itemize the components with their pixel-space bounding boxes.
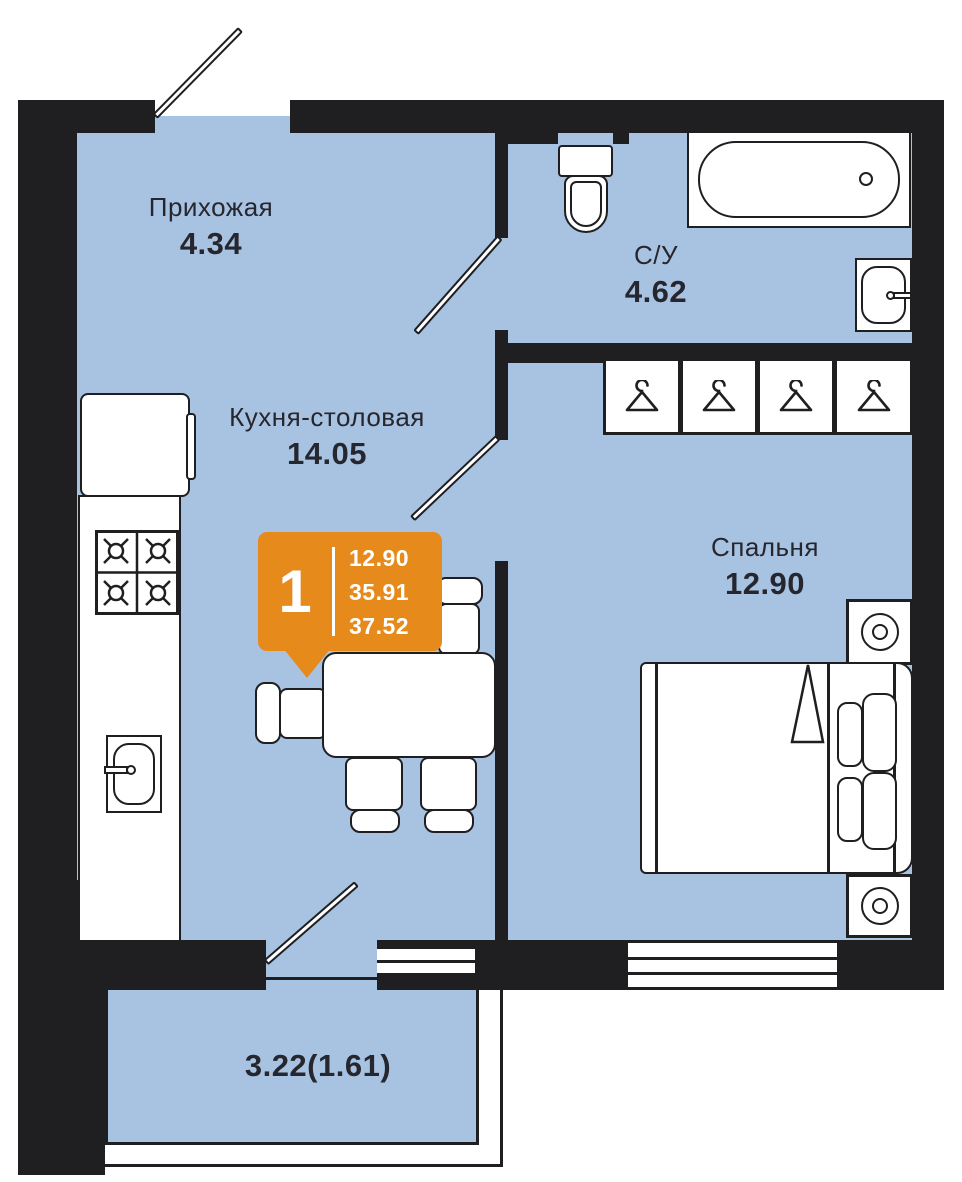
room-label-bathroom: С/У 4.62 <box>625 240 687 310</box>
chair-back-bottom-1 <box>350 809 400 833</box>
lamp-icon-inner <box>872 898 888 914</box>
floor-entrance-gap <box>155 116 290 136</box>
pillow <box>837 702 863 767</box>
room-name: Кухня-столовая <box>229 402 425 433</box>
wall-tab-right-of-toilet <box>613 128 629 144</box>
wardrobe-cell <box>757 358 835 435</box>
bed-footboard-line <box>655 664 658 872</box>
badge-areas: 12.90 35.91 37.52 <box>335 532 409 651</box>
floor-plan: Прихожая 4.34 Кухня-столовая 14.05 С/У 4… <box>0 0 962 1182</box>
bedroom-window <box>628 940 837 990</box>
wall-balcony-left <box>18 985 105 1175</box>
chair-seat-bottom-2 <box>420 757 477 811</box>
window-line <box>628 972 837 975</box>
chair-back-top <box>436 577 483 605</box>
wall-partition-upper <box>495 360 508 440</box>
floor-bathroom-door-gap <box>495 236 508 332</box>
rooms-count: 1 <box>258 532 332 651</box>
wall-bathroom-left-upper <box>495 128 508 238</box>
lamp-icon-inner <box>872 624 888 640</box>
hanger-icon <box>777 380 815 414</box>
wall-right <box>912 100 944 990</box>
chair-seat-bottom-1 <box>345 757 403 811</box>
bathroom-faucet <box>893 292 912 299</box>
wardrobe-cell <box>834 358 913 435</box>
room-area: 4.62 <box>625 274 687 310</box>
kitchen-faucet-knob <box>126 765 136 775</box>
badge-pointer <box>283 648 331 678</box>
chair-seat-left <box>279 688 327 739</box>
wall-bottom-right <box>837 940 944 990</box>
kitchen-window <box>377 946 475 976</box>
wall-left <box>18 100 77 900</box>
floor-bedroom-door-gap <box>495 438 508 563</box>
window-line <box>377 960 475 963</box>
toilet-bowl-inner <box>570 181 602 227</box>
fridge-handle <box>186 413 196 480</box>
chair-back-bottom-2 <box>424 809 474 833</box>
room-label-bedroom: Спальня 12.90 <box>711 532 819 602</box>
room-name: Прихожая <box>149 192 273 223</box>
dining-table <box>322 652 496 758</box>
wall-bottom-mid <box>475 940 628 990</box>
room-area: 3.22(1.61) <box>245 1048 391 1084</box>
hanger-icon <box>623 380 661 414</box>
room-label-kitchen: Кухня-столовая 14.05 <box>229 402 425 472</box>
hanger-icon <box>700 380 738 414</box>
room-label-balcony: 3.22(1.61) <box>245 1048 391 1084</box>
room-name: С/У <box>625 240 687 271</box>
hanger-icon <box>855 380 893 414</box>
wall-bottom-left <box>18 940 266 990</box>
wardrobe-cell <box>680 358 758 435</box>
apartment-info-badge: 1 12.90 35.91 37.52 <box>258 532 442 651</box>
bathtub-drain <box>859 172 873 186</box>
room-area: 4.34 <box>149 226 273 262</box>
balcony-railing-right <box>500 990 503 1167</box>
window-line <box>628 957 837 960</box>
wardrobe-cell <box>603 358 681 435</box>
fridge <box>80 393 190 497</box>
badge-area-value: 12.90 <box>349 541 409 575</box>
badge-area-value: 35.91 <box>349 575 409 609</box>
blanket-fold <box>785 660 830 748</box>
pillow <box>862 693 897 772</box>
room-area: 12.90 <box>711 566 819 602</box>
room-label-hallway: Прихожая 4.34 <box>149 192 273 262</box>
badge-area-value: 37.52 <box>349 609 409 643</box>
entrance-door-leaf <box>153 27 244 119</box>
room-area: 14.05 <box>229 436 425 472</box>
toilet-tank <box>558 145 613 177</box>
wall-partition-lower <box>495 561 508 942</box>
pillow <box>837 777 863 842</box>
bathroom-faucet-knob <box>886 291 895 300</box>
room-name: Спальня <box>711 532 819 563</box>
stove-icon <box>95 530 179 615</box>
chair-back-left <box>255 682 281 744</box>
balcony-railing-bottom <box>104 1164 503 1167</box>
pillow <box>862 772 897 850</box>
kitchen-faucet <box>104 766 128 774</box>
chair-seat-top <box>438 603 480 655</box>
